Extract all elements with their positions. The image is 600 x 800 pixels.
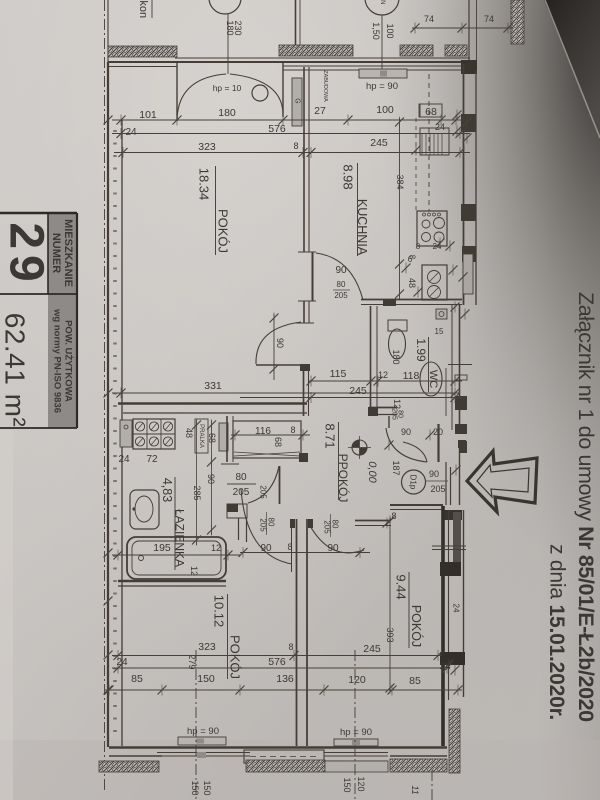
svg-text:205: 205 — [233, 487, 250, 498]
svg-text:100: 100 — [385, 23, 395, 38]
svg-text:29: 29 — [0, 222, 53, 287]
svg-text:D1p: D1p — [409, 475, 418, 490]
svg-text:180: 180 — [391, 349, 401, 364]
svg-text:8: 8 — [416, 242, 421, 251]
svg-text:205: 205 — [391, 408, 398, 420]
svg-text:POKÓJ: POKÓJ — [409, 605, 424, 647]
svg-text:8: 8 — [391, 511, 396, 521]
svg-text:ZABUDOWA: ZABUDOWA — [322, 70, 328, 102]
svg-text:18.34: 18.34 — [197, 168, 212, 201]
svg-text:68: 68 — [207, 433, 217, 443]
svg-text:8.98: 8.98 — [341, 164, 356, 189]
svg-text:72: 72 — [146, 454, 158, 465]
svg-text:90: 90 — [327, 543, 339, 554]
svg-text:12: 12 — [211, 543, 221, 553]
svg-text:323: 323 — [198, 141, 216, 153]
svg-text:24: 24 — [116, 657, 128, 668]
svg-text:PPOKÓJ: PPOKÓJ — [336, 454, 351, 503]
svg-text:27: 27 — [314, 105, 326, 117]
svg-text:POKÓJ: POKÓJ — [228, 635, 243, 679]
svg-text:MIESZKANIE: MIESZKANIE — [62, 219, 74, 287]
svg-text:331: 331 — [204, 380, 222, 392]
svg-text:205: 205 — [259, 485, 268, 499]
svg-text:90: 90 — [275, 338, 285, 348]
svg-text:393: 393 — [385, 627, 395, 642]
svg-text:0,00: 0,00 — [366, 461, 378, 483]
svg-text:8: 8 — [288, 642, 293, 652]
svg-text:20: 20 — [433, 427, 443, 437]
svg-text:KUCHNIA: KUCHNIA — [355, 199, 369, 256]
svg-text:ŁAZIENKA: ŁAZIENKA — [173, 509, 187, 567]
svg-text:150: 150 — [197, 673, 215, 685]
svg-text:24: 24 — [435, 122, 445, 132]
svg-text:195: 195 — [153, 542, 171, 554]
svg-text:wg normy PN-ISO 9836: wg normy PN-ISO 9836 — [52, 308, 63, 413]
svg-text:z dnia 15.01.2020r.: z dnia 15.01.2020r. — [546, 544, 569, 720]
svg-text:24: 24 — [452, 604, 461, 613]
svg-text:68: 68 — [425, 106, 437, 118]
svg-text:8.71: 8.71 — [323, 423, 338, 448]
svg-text:8: 8 — [408, 255, 417, 260]
svg-text:24: 24 — [125, 127, 137, 138]
svg-text:384: 384 — [395, 174, 405, 189]
svg-text:187: 187 — [391, 460, 401, 475]
svg-text:1.99: 1.99 — [414, 338, 428, 362]
svg-text:48: 48 — [184, 428, 194, 438]
svg-text:PRALKA: PRALKA — [198, 424, 204, 448]
svg-text:230: 230 — [233, 20, 243, 35]
svg-text:8: 8 — [293, 141, 298, 151]
svg-text:285: 285 — [192, 485, 202, 500]
svg-text:4,83: 4,83 — [160, 478, 174, 502]
svg-text:10.12: 10.12 — [212, 595, 227, 628]
svg-text:15: 15 — [435, 327, 444, 336]
svg-text:POKÓJ: POKÓJ — [216, 209, 231, 253]
svg-text:POW. UŻYTKOWA: POW. UŻYTKOWA — [63, 320, 74, 402]
svg-text:205: 205 — [430, 484, 445, 494]
svg-text:9.44: 9.44 — [394, 574, 409, 599]
svg-text:G: G — [294, 98, 301, 103]
svg-text:120: 120 — [348, 674, 366, 686]
svg-text:100: 100 — [376, 104, 394, 116]
svg-text:150: 150 — [202, 780, 212, 795]
svg-text:hp = 90: hp = 90 — [187, 726, 219, 737]
svg-text:74: 74 — [484, 14, 494, 24]
svg-text:120: 120 — [356, 776, 366, 791]
svg-text:150: 150 — [342, 777, 352, 792]
svg-text:101: 101 — [139, 109, 157, 121]
svg-text:8: 8 — [287, 542, 292, 552]
svg-text:115: 115 — [330, 368, 347, 380]
svg-text:74: 74 — [424, 14, 434, 24]
svg-text:85: 85 — [409, 675, 421, 687]
svg-text:90: 90 — [260, 543, 272, 554]
svg-text:12: 12 — [189, 566, 199, 576]
svg-text:150: 150 — [190, 780, 200, 795]
svg-text:Załącznik nr 1 do umowy Nr 85/: Załącznik nr 1 do umowy Nr 85/01/E-Ł2b/2… — [574, 292, 598, 722]
svg-text:245: 245 — [363, 643, 381, 655]
svg-text:62.41 m²: 62.41 m² — [0, 313, 31, 428]
svg-text:80: 80 — [337, 280, 346, 289]
svg-text:hp = 90: hp = 90 — [366, 81, 398, 92]
svg-text:80: 80 — [267, 518, 276, 527]
svg-text:68: 68 — [273, 437, 283, 447]
svg-text:245: 245 — [370, 137, 388, 149]
svg-text:11: 11 — [410, 785, 420, 794]
svg-text:245: 245 — [349, 385, 367, 397]
svg-text:85: 85 — [131, 673, 143, 685]
svg-text:1,50: 1,50 — [371, 22, 381, 40]
svg-text:279: 279 — [187, 654, 197, 669]
svg-text:116: 116 — [255, 426, 271, 437]
svg-text:NUMER: NUMER — [50, 233, 62, 273]
svg-text:90: 90 — [401, 427, 411, 437]
svg-text:lkon: lkon — [137, 0, 149, 18]
svg-text:180: 180 — [218, 107, 236, 119]
svg-text:323: 323 — [198, 641, 216, 653]
svg-text:24: 24 — [433, 242, 442, 251]
svg-text:48: 48 — [407, 278, 417, 288]
svg-text:90: 90 — [335, 265, 347, 276]
svg-text:90: 90 — [206, 474, 216, 484]
svg-text:576: 576 — [268, 656, 286, 668]
svg-text:8: 8 — [290, 425, 295, 435]
svg-text:136: 136 — [276, 673, 294, 685]
svg-text:205: 205 — [334, 291, 348, 300]
svg-text:OSN: OSN — [379, 0, 385, 5]
svg-text:24: 24 — [439, 661, 451, 672]
svg-text:WC: WC — [427, 370, 439, 388]
svg-text:12: 12 — [378, 370, 388, 380]
svg-text:118: 118 — [403, 370, 420, 382]
svg-text:24: 24 — [118, 454, 130, 465]
svg-text:hp = 90: hp = 90 — [340, 727, 372, 738]
svg-text:80: 80 — [331, 520, 340, 529]
svg-text:hp = 10: hp = 10 — [213, 83, 242, 93]
svg-text:90: 90 — [429, 469, 439, 479]
svg-text:576: 576 — [268, 123, 286, 135]
svg-text:80: 80 — [235, 472, 247, 483]
